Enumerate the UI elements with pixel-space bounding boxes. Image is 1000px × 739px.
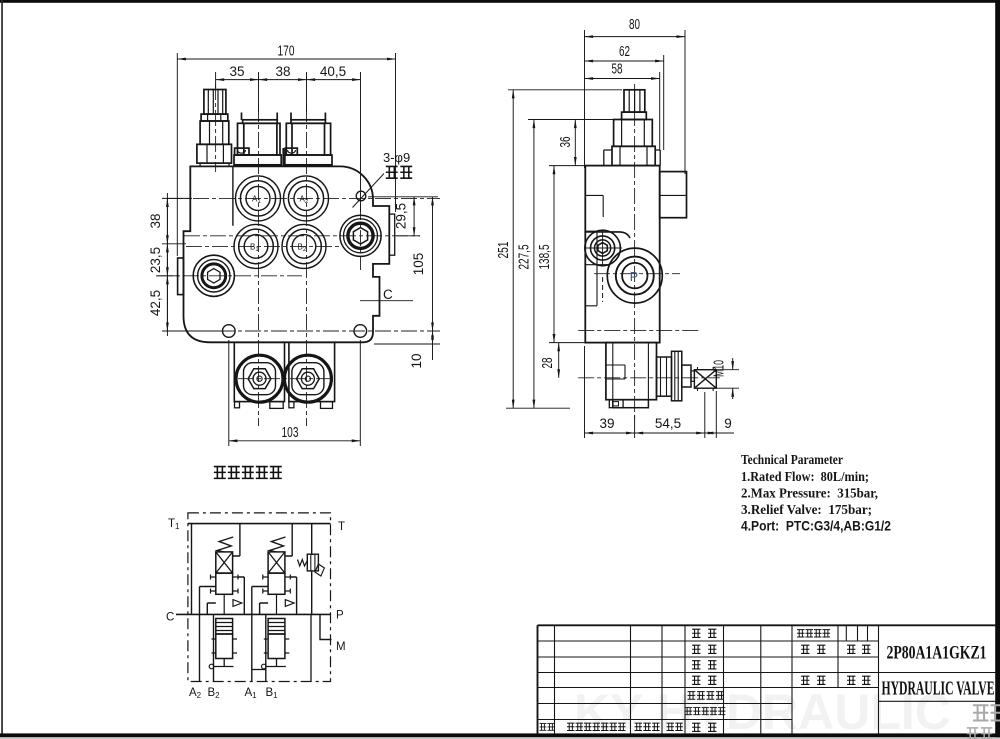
svg-text:C: C: [166, 612, 174, 624]
svg-text:4.Port: PTC:G3/4,AB:G1/2: 4.Port: PTC:G3/4,AB:G1/2: [741, 519, 891, 534]
svg-text:10: 10: [409, 353, 424, 368]
svg-text:M10: M10: [712, 360, 728, 377]
svg-text:80: 80: [629, 17, 640, 33]
svg-text:P: P: [630, 270, 638, 284]
svg-text:105: 105: [411, 253, 426, 276]
svg-text:M: M: [336, 641, 346, 653]
svg-text:58: 58: [612, 62, 623, 78]
svg-text:138,5: 138,5: [537, 245, 553, 270]
svg-text:3-φ9: 3-φ9: [383, 150, 410, 165]
svg-text:2.Max Pressure: 315bar,: 2.Max Pressure: 315bar,: [741, 487, 878, 502]
svg-text:1.Rated Flow: 80L/min;: 1.Rated Flow: 80L/min;: [741, 470, 869, 485]
svg-text:251: 251: [496, 242, 512, 259]
svg-text:42,5: 42,5: [148, 290, 163, 316]
svg-text:HYDRAULIC VALVE: HYDRAULIC VALVE: [882, 678, 995, 700]
svg-text:9: 9: [724, 416, 732, 431]
svg-text:Technical Parameter: Technical Parameter: [741, 452, 843, 467]
svg-text:39: 39: [599, 416, 614, 431]
svg-text:28: 28: [540, 358, 556, 369]
svg-text:35: 35: [229, 64, 244, 79]
svg-text:C: C: [383, 287, 393, 302]
svg-text:170: 170: [278, 44, 295, 60]
svg-text:40,5: 40,5: [320, 64, 346, 79]
svg-text:3.Relief Valve: 175bar;: 3.Relief Valve: 175bar;: [741, 503, 872, 518]
svg-text:23,5: 23,5: [148, 247, 163, 273]
svg-text:38: 38: [275, 64, 290, 79]
svg-text:29,5: 29,5: [394, 203, 409, 229]
svg-text:227,5: 227,5: [517, 245, 533, 270]
svg-text:2P80A1A1GKZ1: 2P80A1A1GKZ1: [887, 643, 987, 664]
svg-text:103: 103: [282, 425, 299, 441]
svg-text:38: 38: [148, 213, 163, 228]
svg-text:62: 62: [619, 44, 630, 60]
svg-text:54,5: 54,5: [655, 416, 681, 431]
svg-text:T: T: [338, 521, 345, 533]
svg-text:P: P: [336, 610, 344, 622]
svg-text:36: 36: [558, 137, 574, 148]
